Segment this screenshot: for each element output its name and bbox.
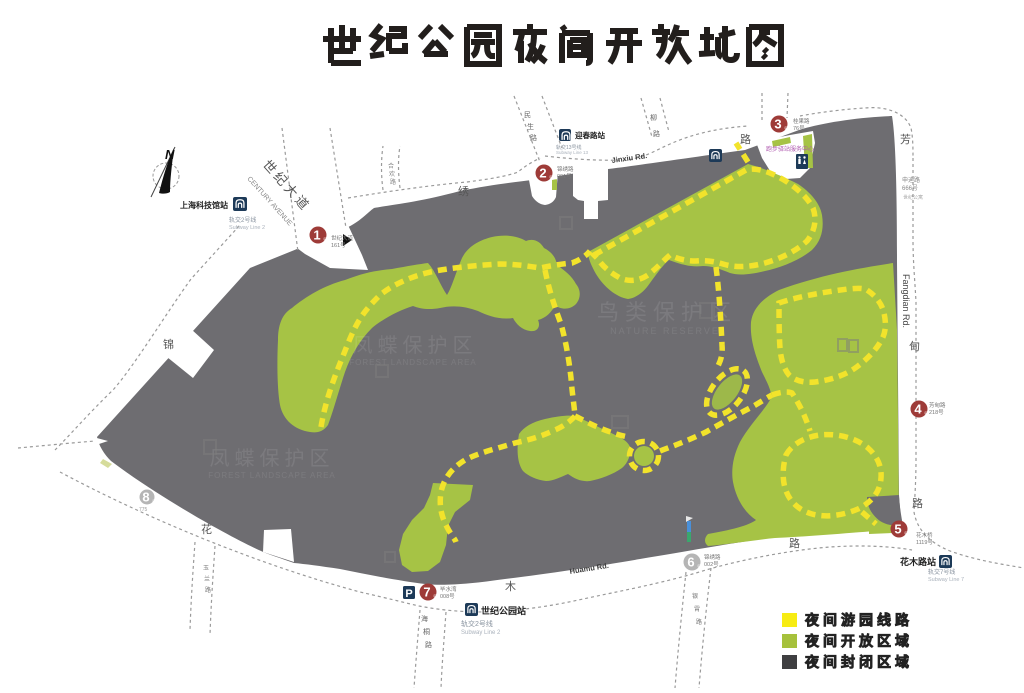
svg-text:NATURE RESERVE: NATURE RESERVE <box>610 326 720 336</box>
svg-text:跑步驿站服务中心: 跑步驿站服务中心 <box>766 145 814 153</box>
svg-text:欢: 欢 <box>389 170 395 178</box>
svg-text:路: 路 <box>912 497 923 510</box>
svg-text:号门: 号门 <box>152 498 160 504</box>
svg-text:上海科技馆站: 上海科技馆站 <box>180 200 228 210</box>
svg-text:76号: 76号 <box>793 125 805 132</box>
svg-text:FOREST LANDSCAPE AREA: FOREST LANDSCAPE AREA <box>349 358 477 367</box>
svg-text:轨交2号线: 轨交2号线 <box>229 216 256 224</box>
svg-text:775: 775 <box>139 507 148 513</box>
svg-text:1119号: 1119号 <box>916 539 933 546</box>
svg-text:666号: 666号 <box>902 185 918 192</box>
svg-text:芳: 芳 <box>900 132 911 146</box>
svg-text:5: 5 <box>894 522 901 537</box>
svg-text:号门: 号门 <box>549 174 557 180</box>
svg-text:路: 路 <box>740 133 751 146</box>
svg-text:夜间游园线路: 夜间游园线路 <box>804 612 913 628</box>
svg-text:生: 生 <box>527 122 534 131</box>
svg-text:008号: 008号 <box>440 593 455 600</box>
svg-text:P: P <box>405 588 412 600</box>
svg-text:218号: 218号 <box>929 409 944 416</box>
svg-text:7: 7 <box>423 585 430 600</box>
svg-text:1: 1 <box>313 228 320 243</box>
svg-text:2: 2 <box>539 166 546 181</box>
svg-text:FOREST LANDSCAPE AREA: FOREST LANDSCAPE AREA <box>208 471 336 480</box>
svg-text:3: 3 <box>774 117 781 132</box>
svg-text:锦绣路: 锦绣路 <box>557 165 574 173</box>
svg-text:N: N <box>165 147 175 162</box>
svg-text:路: 路 <box>205 586 211 594</box>
svg-text:兰: 兰 <box>204 575 210 583</box>
svg-text:路: 路 <box>530 133 537 142</box>
svg-text:桂果路: 桂果路 <box>793 117 810 125</box>
svg-text:合: 合 <box>388 162 394 170</box>
svg-text:Subway Line 2: Subway Line 2 <box>229 225 265 231</box>
svg-text:号门: 号门 <box>904 530 912 536</box>
svg-text:Subway Line 13: Subway Line 13 <box>556 150 589 155</box>
svg-text:号门: 号门 <box>784 125 792 131</box>
svg-text:161号: 161号 <box>331 242 346 249</box>
svg-text:号门: 号门 <box>323 236 331 242</box>
svg-text:迎春路站: 迎春路站 <box>575 130 605 140</box>
svg-text:夜间开放区域: 夜间开放区域 <box>804 633 913 649</box>
svg-text:凤蝶保护区: 凤蝶保护区 <box>210 447 335 470</box>
svg-text:甸: 甸 <box>909 340 920 353</box>
svg-text:毕水湾: 毕水湾 <box>440 585 457 593</box>
svg-text:轨交7号线: 轨交7号线 <box>928 568 955 576</box>
svg-text:路: 路 <box>789 537 800 550</box>
svg-text:锦绣路: 锦绣路 <box>704 553 721 561</box>
svg-text:Subway Line 2: Subway Line 2 <box>461 630 501 636</box>
svg-text:路: 路 <box>390 178 396 186</box>
svg-text:001号: 001号 <box>557 173 572 180</box>
svg-text:世纪公寓: 世纪公寓 <box>903 194 923 201</box>
svg-text:玉: 玉 <box>203 565 209 572</box>
svg-text:世纪公园站: 世纪公园站 <box>481 605 526 616</box>
svg-text:银: 银 <box>692 592 698 600</box>
svg-text:鸟类保护区: 鸟类保护区 <box>597 300 737 325</box>
svg-text:6: 6 <box>687 555 694 570</box>
svg-text:路: 路 <box>696 618 702 626</box>
svg-text:002号: 002号 <box>704 561 719 568</box>
svg-text:世纪大道: 世纪大道 <box>331 234 354 242</box>
svg-text:花木桥: 花木桥 <box>916 531 933 539</box>
svg-text:Fangdian Rd.: Fangdian Rd. <box>901 274 911 328</box>
svg-text:申迪路: 申迪路 <box>902 176 920 184</box>
svg-text:凤蝶保护区: 凤蝶保护区 <box>353 334 478 357</box>
svg-text:绣: 绣 <box>458 185 469 198</box>
svg-text:锦: 锦 <box>163 337 174 351</box>
svg-text:花木路站: 花木路站 <box>900 556 936 567</box>
svg-text:8: 8 <box>142 490 149 505</box>
svg-text:海: 海 <box>421 614 428 623</box>
svg-text:4: 4 <box>914 402 922 417</box>
svg-text:芳甸路: 芳甸路 <box>929 401 946 409</box>
svg-text:柳: 柳 <box>650 113 657 122</box>
svg-text:夜间封闭区域: 夜间封闭区域 <box>804 654 913 670</box>
svg-text:花: 花 <box>201 523 212 536</box>
svg-text:木: 木 <box>505 580 516 593</box>
svg-text:Subway Line 7: Subway Line 7 <box>928 577 964 583</box>
svg-text:民: 民 <box>524 111 531 119</box>
svg-text:桐: 桐 <box>423 627 430 636</box>
svg-text:路: 路 <box>653 129 660 138</box>
svg-text:路: 路 <box>425 640 432 649</box>
svg-text:霄: 霄 <box>694 606 700 613</box>
svg-text:轨交2号线: 轨交2号线 <box>461 619 493 628</box>
